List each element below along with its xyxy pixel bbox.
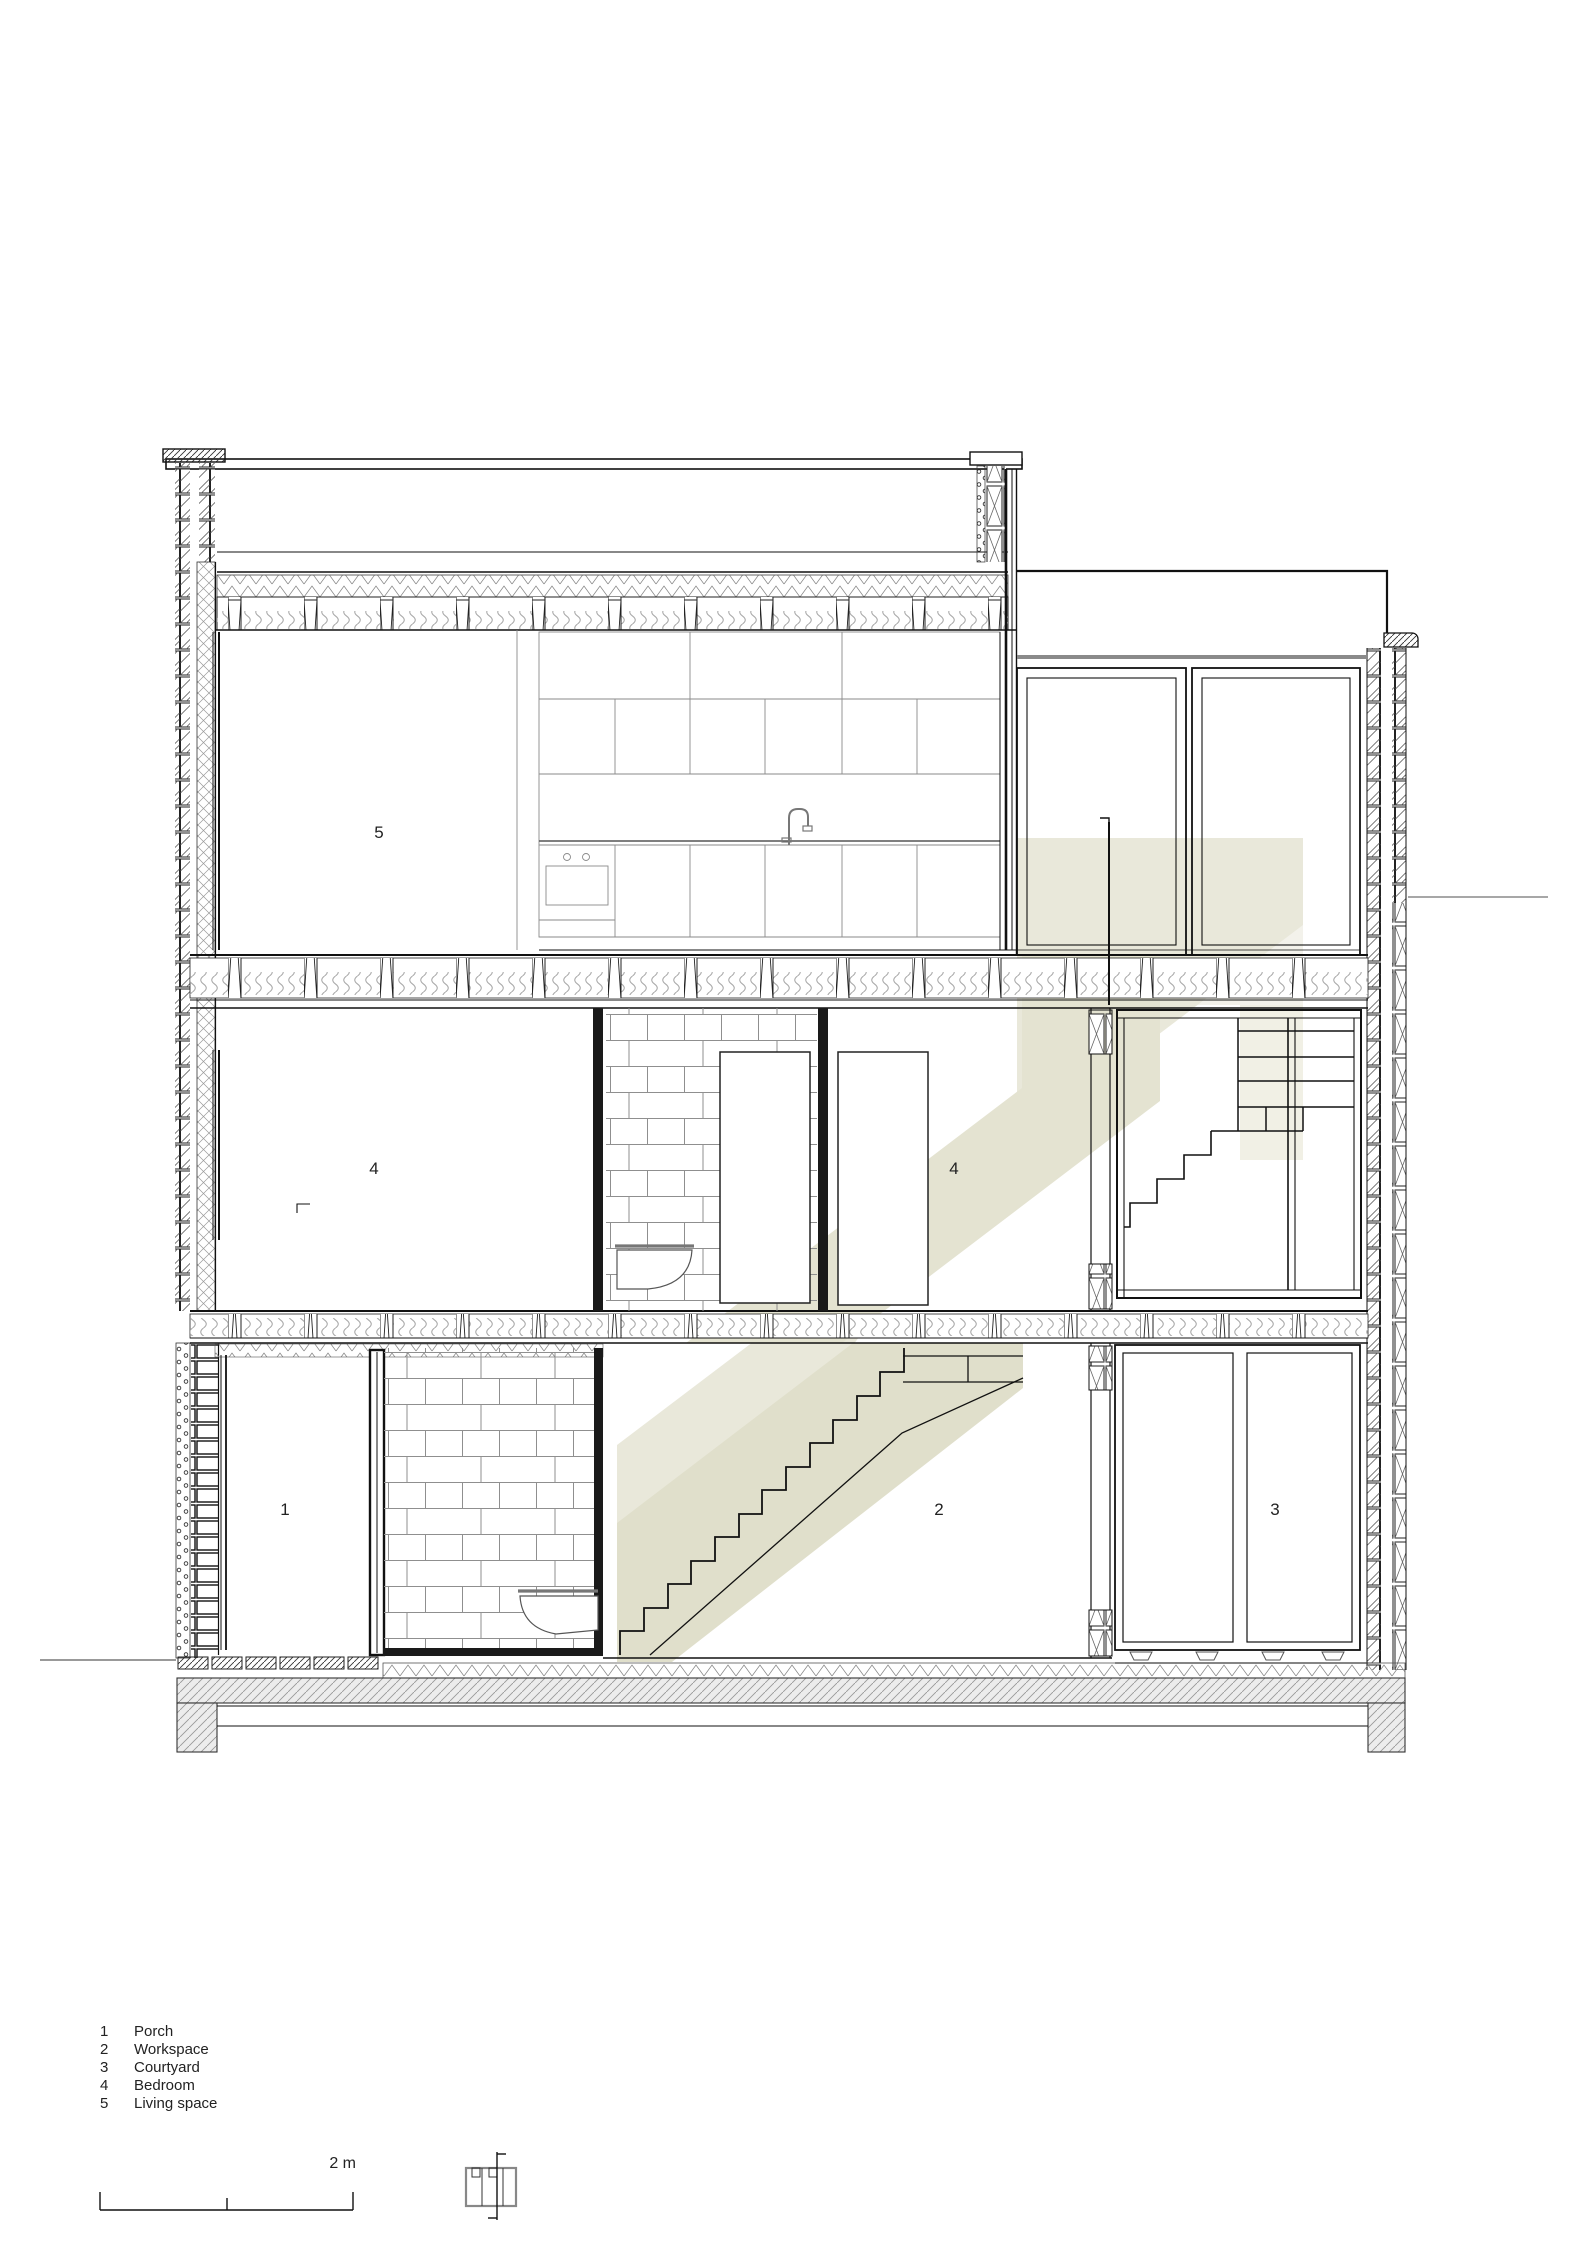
foundation-right — [1368, 1703, 1405, 1752]
porch-door — [221, 1350, 384, 1655]
room-label-bedroom-right: 4 — [949, 1159, 958, 1178]
roof-insulation — [217, 575, 1008, 597]
bedroom-left-window — [213, 1050, 310, 1240]
stair-shade-landing — [1240, 1005, 1303, 1160]
rear-roof-outline — [1017, 571, 1387, 633]
legend-num-5: 5 — [100, 2095, 108, 2112]
section-drawing: 5 4 4 1 2 3 1 Porch 2 Workspace 3 Courty… — [0, 0, 1590, 2248]
right-wall — [1367, 633, 1418, 1670]
window-handle-mark — [297, 1204, 310, 1213]
legend-num-3: 3 — [100, 2059, 108, 2076]
oven-icon — [539, 854, 615, 921]
right-parapet-coping — [1384, 633, 1418, 647]
courtyard-windows — [1115, 1345, 1368, 1663]
legend-num-2: 2 — [100, 2041, 108, 2058]
left-wall — [175, 562, 219, 1658]
left-wall-insulation — [176, 1343, 190, 1658]
foundation-left — [177, 1703, 217, 1752]
stair-shade-ground — [617, 1343, 1023, 1662]
porch-pavers — [178, 1657, 378, 1669]
roof-joists — [217, 597, 1008, 630]
wardrobe-panel — [838, 1052, 928, 1305]
glazed-partition-ground — [1089, 1343, 1112, 1658]
legend-label-5: Living space — [134, 2095, 217, 2112]
roof-assembly — [166, 459, 1022, 630]
roof-fascia — [166, 459, 1022, 469]
scale-bar: 2 m — [100, 2155, 356, 2210]
legend-num-1: 1 — [100, 2023, 108, 2040]
kitchen-elevation — [517, 630, 1016, 950]
room-label-bedroom-left: 4 — [369, 1159, 378, 1178]
floor-insulation — [383, 1663, 1405, 1678]
legend-label-1: Porch — [134, 2023, 173, 2040]
ground-slab-band — [177, 1678, 1405, 1703]
legend-num-4: 4 — [100, 2077, 108, 2094]
window-feet — [1130, 1652, 1344, 1660]
room-label-porch: 1 — [280, 1500, 289, 1519]
section-plan-icon — [466, 2152, 516, 2220]
shower-door-panel — [720, 1052, 810, 1303]
faucet-icon — [782, 809, 812, 845]
stair-middle-steps — [1124, 1131, 1211, 1227]
glazed-partition-middle — [1089, 1008, 1112, 1311]
floor-slab-upper — [190, 955, 1368, 1008]
room-label-workspace: 2 — [934, 1500, 943, 1519]
room-label-courtyard: 3 — [1270, 1500, 1279, 1519]
ground-slab — [177, 1657, 1405, 1752]
section-drawing-sheet: 5 4 4 1 2 3 1 Porch 2 Workspace 3 Courty… — [0, 0, 1590, 2248]
bathroom-wall-right — [818, 1008, 828, 1311]
toilet-floor-band — [383, 1648, 603, 1656]
scale-label: 2 m — [329, 2155, 356, 2172]
legend-label-4: Bedroom — [134, 2077, 195, 2094]
left-wall-brick — [191, 1343, 218, 1658]
legend: 1 Porch 2 Workspace 3 Courtyard 4 Bedroo… — [100, 2023, 217, 2112]
room-label-living: 5 — [374, 823, 383, 842]
bathroom-wall-left — [593, 1008, 603, 1311]
legend-label-3: Courtyard — [134, 2059, 200, 2076]
legend-label-2: Workspace — [134, 2041, 209, 2058]
